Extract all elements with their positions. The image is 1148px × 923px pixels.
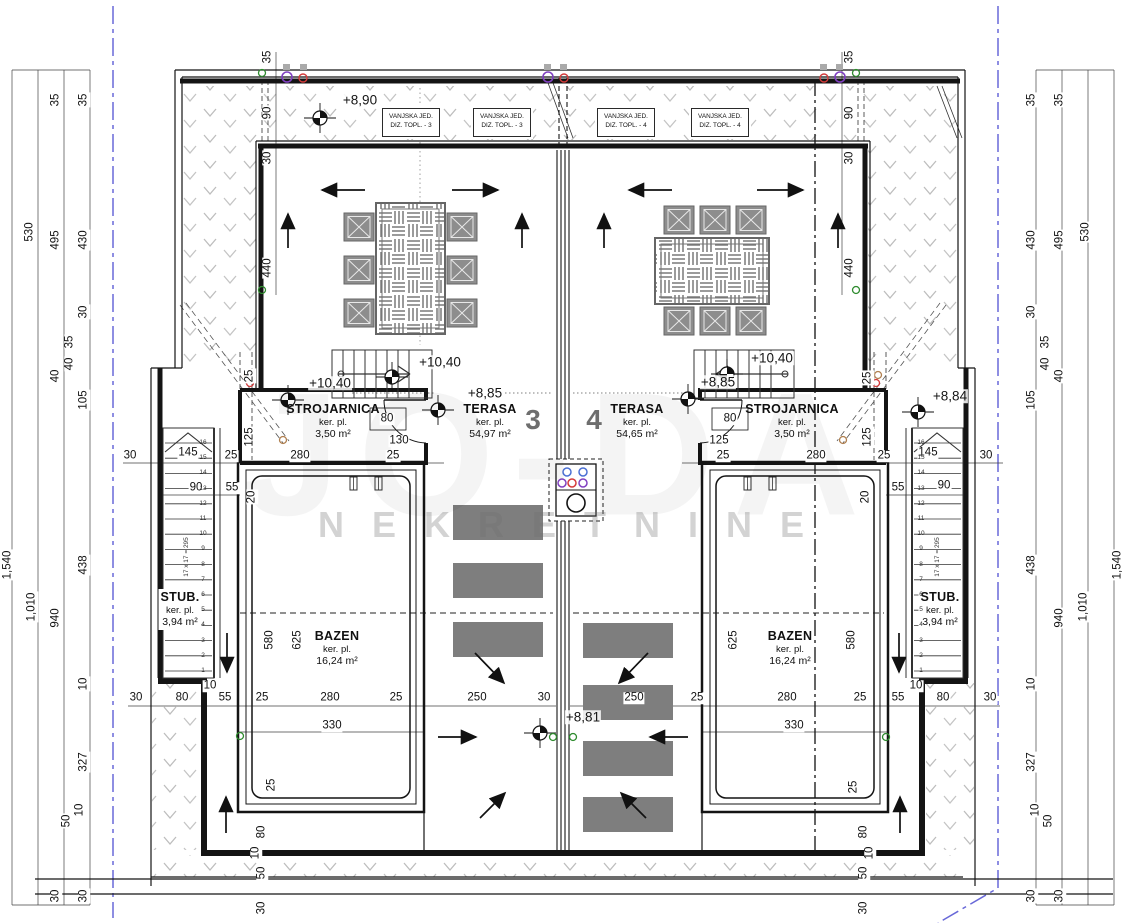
dim-label: 40 [50,369,62,384]
stair-tread-number: 16 [199,440,206,447]
dim-label: 40 [64,357,76,372]
dim-label: 30 [979,450,994,462]
stair-tread-number: 10 [917,531,924,538]
dim-label: 280 [289,450,310,462]
dim-label: 440 [262,257,274,278]
dim-label: 580 [264,629,276,650]
dim-label: 55 [891,482,906,494]
dim-label: 625 [728,629,740,650]
dim-label: 105 [1026,389,1038,410]
stair-tread-number: 9 [919,546,923,553]
dim-label: 250 [466,692,487,704]
floor-plan-page: JO-DA [0,0,1148,923]
stair-tread-number: 11 [918,516,925,523]
dimension-labels: 1,5405301,010354954094030354303035401054… [0,0,1148,923]
dim-label: 10 [864,846,876,861]
dim-label: 10 [250,846,262,861]
dim-label: 327 [1026,751,1038,772]
dim-label: 1,010 [1078,592,1090,623]
dim-label: 105 [78,389,90,410]
dim-label: 30 [1026,305,1038,320]
dim-label: 625 [292,629,304,650]
dim-label: 25 [266,778,278,793]
spot-elevation-label: +10,40 [750,351,794,365]
dim-label: 250 [623,692,644,704]
dim-label: 35 [1026,93,1038,108]
dim-label: 35 [50,93,62,108]
spot-elevation-label: +8,85 [467,386,503,400]
stair-tread-number: 3 [919,637,923,644]
stair-tread-number: 2 [201,653,205,660]
dim-label: 130 [388,435,409,447]
stair-tread-number: 7 [201,577,205,584]
stair-formula: 17 x 17 = 295 [184,537,191,577]
dim-label: 125 [862,426,874,447]
dim-label: 30 [537,692,552,704]
dim-label: 55 [225,482,240,494]
stair-tread-number: 11 [200,516,207,523]
dim-label: 90 [937,480,952,492]
dim-label: 10 [74,803,86,818]
dim-label: 90 [262,106,274,121]
stair-tread-number: 12 [199,501,206,508]
dim-label: 80 [936,692,951,704]
dim-label: 530 [24,221,36,242]
spot-elevation-label: +8,84 [932,389,968,403]
dim-label: 40 [1040,357,1052,372]
dim-label: 30 [123,450,138,462]
stair-tread-number: 14 [917,470,924,477]
dim-label: 30 [78,305,90,320]
dim-label: 10 [203,680,218,692]
dim-label: 25 [716,450,731,462]
stair-tread-number: 9 [201,546,205,553]
stair-tread-number: 12 [917,501,924,508]
dim-label: 80 [380,413,395,425]
stair-tread-number: 7 [919,577,923,584]
dim-label: 30 [1054,889,1066,904]
dim-label: 20 [246,490,258,505]
dim-label: 580 [846,629,858,650]
dim-label: 145 [177,447,198,459]
spot-elevation-label: +10,40 [418,355,462,369]
dim-label: 25 [244,369,256,384]
dim-label: 80 [175,692,190,704]
dim-label: 280 [805,450,826,462]
dim-label: 50 [256,866,268,881]
stair-tread-number: 4 [919,622,923,629]
dim-label: 80 [723,413,738,425]
dim-label: 35 [64,335,76,350]
spot-elevation-label: +8,81 [565,710,601,724]
spot-elevation-label: +8,85 [700,375,736,389]
dim-label: 80 [256,825,268,840]
dim-label: 30 [50,889,62,904]
dim-label: 30 [256,901,268,916]
dim-label: 10 [1026,677,1038,692]
stair-tread-number: 6 [201,592,205,599]
stair-formula: 17 x 17 = 295 [935,537,942,577]
dim-label: 50 [858,866,870,881]
stair-tread-number: 4 [201,622,205,629]
dim-label: 30 [129,692,144,704]
dim-label: 25 [853,692,868,704]
dim-label: 35 [1040,335,1052,350]
dim-label: 430 [78,229,90,250]
stair-tread-number: 5 [201,607,205,614]
dim-label: 90 [844,106,856,121]
spot-elevation-label: +10,40 [308,376,352,390]
dim-label: 55 [891,692,906,704]
stair-tread-number: 1 [919,668,923,675]
stair-tread-number: 8 [919,561,923,568]
dim-label: 330 [783,720,804,732]
dim-label: 495 [1054,229,1066,250]
dim-label: 530 [1080,221,1092,242]
dim-label: 10 [909,680,924,692]
dim-label: 30 [983,692,998,704]
dim-label: 125 [244,426,256,447]
dim-label: 50 [1043,814,1055,829]
dim-label: 440 [844,257,856,278]
stair-tread-number: 1 [201,668,205,675]
dim-label: 495 [50,229,62,250]
dim-label: 55 [218,692,233,704]
dim-label: 35 [262,50,274,65]
dim-label: 80 [858,825,870,840]
dim-label: 438 [78,554,90,575]
dim-label: 25 [389,692,404,704]
dim-label: 438 [1026,554,1038,575]
dim-label: 25 [224,450,239,462]
dim-label: 30 [858,901,870,916]
dim-label: 25 [848,780,860,795]
dim-label: 1,540 [2,550,14,581]
dim-label: 30 [262,151,274,166]
dim-label: 10 [78,677,90,692]
dim-label: 280 [319,692,340,704]
stair-tread-number: 13 [917,485,924,492]
dim-label: 35 [78,93,90,108]
stair-tread-number: 13 [199,485,206,492]
stair-tread-number: 2 [919,653,923,660]
dim-label: 940 [50,607,62,628]
dim-label: 50 [61,814,73,829]
dim-label: 30 [1026,889,1038,904]
stair-tread-number: 5 [919,607,923,614]
dim-label: 280 [776,692,797,704]
dim-label: 20 [860,490,872,505]
stair-tread-number: 14 [199,470,206,477]
dim-label: 40 [1054,369,1066,384]
dim-label: 30 [78,889,90,904]
dim-label: 30 [844,151,856,166]
dim-label: 10 [1030,803,1042,818]
dim-label: 25 [255,692,270,704]
stair-tread-number: 15 [917,455,924,462]
dim-label: 35 [1054,93,1066,108]
dim-label: 1,540 [1112,550,1124,581]
stair-tread-number: 3 [201,637,205,644]
dim-label: 430 [1026,229,1038,250]
dim-label: 1,010 [26,592,38,623]
dim-label: 25 [862,371,874,386]
dim-label: 940 [1054,607,1066,628]
dim-label: 35 [844,50,856,65]
stair-tread-number: 8 [201,561,205,568]
stair-tread-number: 16 [917,440,924,447]
dim-label: 25 [877,450,892,462]
stair-tread-number: 6 [919,592,923,599]
stair-tread-number: 10 [199,531,206,538]
dim-label: 327 [78,751,90,772]
dim-label: 125 [708,435,729,447]
dim-label: 25 [386,450,401,462]
stair-tread-number: 15 [199,455,206,462]
dim-label: 330 [321,720,342,732]
dim-label: 25 [690,692,705,704]
spot-elevation-label: +8,90 [342,93,378,107]
